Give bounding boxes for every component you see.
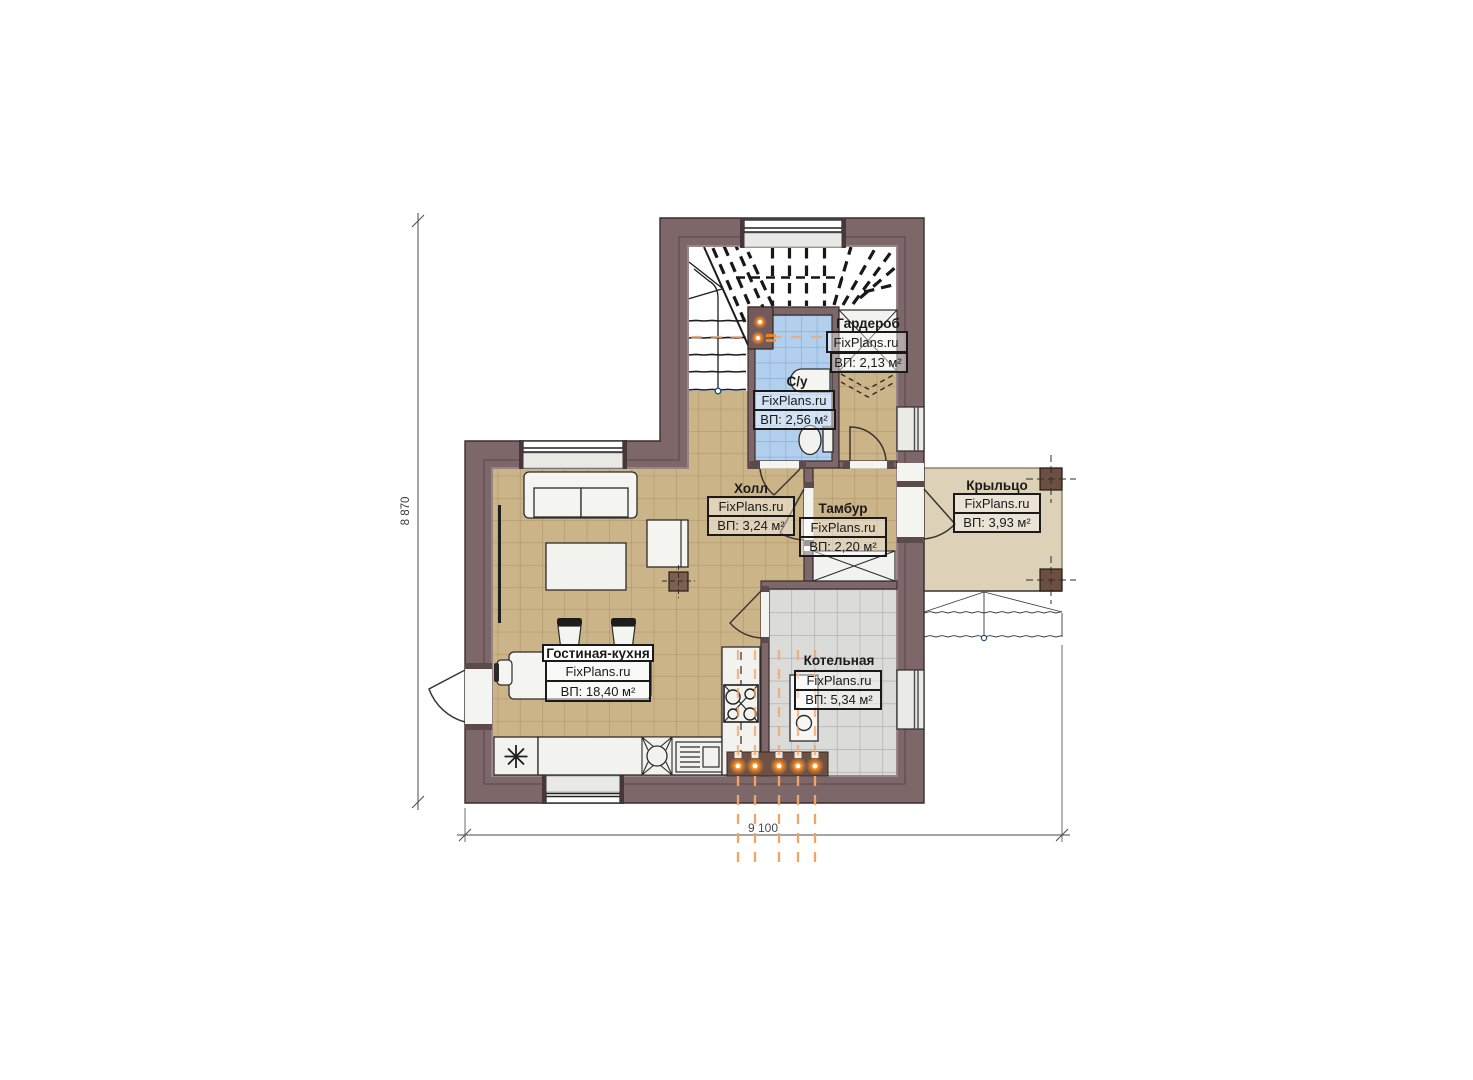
svg-text:ВП: 2,13 м²: ВП: 2,13 м²	[834, 355, 902, 370]
svg-text:FixPlans.ru: FixPlans.ru	[718, 499, 783, 514]
svg-text:ВП: 2,56 м²: ВП: 2,56 м²	[760, 412, 828, 427]
svg-text:ВП: 3,93 м²: ВП: 3,93 м²	[963, 515, 1031, 530]
svg-text:Крыльцо: Крыльцо	[966, 478, 1027, 493]
svg-text:Тамбур: Тамбур	[819, 501, 868, 516]
svg-text:ВП: 3,24 м²: ВП: 3,24 м²	[717, 518, 785, 533]
svg-text:FixPlans.ru: FixPlans.ru	[833, 335, 898, 350]
svg-text:С/у: С/у	[786, 374, 808, 389]
svg-text:FixPlans.ru: FixPlans.ru	[964, 496, 1029, 511]
svg-text:Гостиная-кухня: Гостиная-кухня	[546, 646, 649, 661]
svg-text:ВП: 18,40 м²: ВП: 18,40 м²	[561, 684, 636, 699]
svg-text:FixPlans.ru: FixPlans.ru	[761, 393, 826, 408]
svg-text:Котельная: Котельная	[804, 653, 875, 668]
svg-text:Холл: Холл	[734, 481, 768, 496]
svg-text:FixPlans.ru: FixPlans.ru	[565, 664, 630, 679]
svg-text:8 870: 8 870	[400, 497, 412, 526]
svg-text:FixPlans.ru: FixPlans.ru	[806, 673, 871, 688]
svg-text:FixPlans.ru: FixPlans.ru	[810, 520, 875, 535]
svg-text:9 100: 9 100	[748, 821, 778, 835]
svg-text:Гардероб: Гардероб	[836, 316, 900, 331]
svg-text:ВП: 2,20 м²: ВП: 2,20 м²	[809, 539, 877, 554]
svg-text:ВП: 5,34 м²: ВП: 5,34 м²	[805, 692, 873, 707]
